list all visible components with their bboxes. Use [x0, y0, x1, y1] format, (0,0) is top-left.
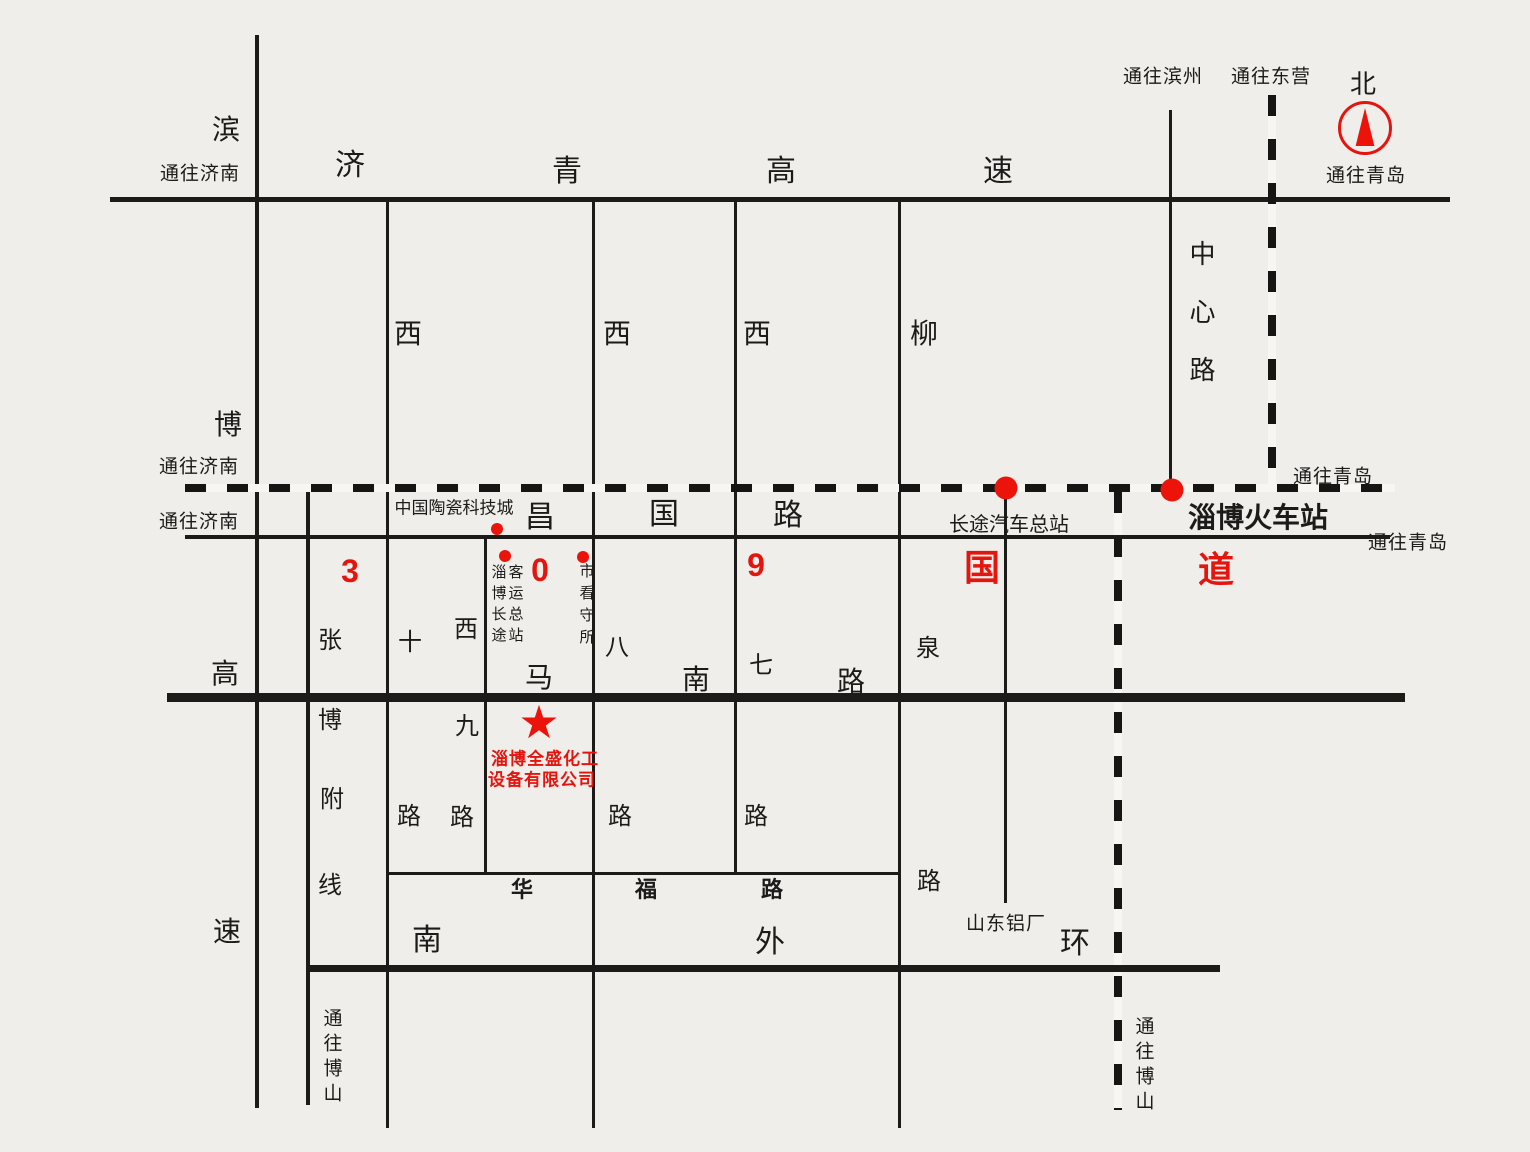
huafu-char-hua: 华 — [511, 879, 533, 901]
zhangbo-branch-line — [306, 488, 310, 1105]
binbo-char-bin: 滨 — [212, 116, 240, 144]
xi8-char-xi: 西 — [603, 320, 631, 348]
to-jinan-changguo-label: 通往济南 — [159, 513, 239, 532]
schematic-location-map: 通往济南 济 青 高 速 通往滨州 通往东营 北 通往青岛 西 西 西 柳 中心… — [0, 0, 1530, 1152]
north-label: 北 — [1350, 71, 1376, 97]
route309-char-dao: 道 — [1198, 552, 1234, 588]
to-dongying-label: 通往东营 — [1231, 68, 1311, 87]
xi10-char-xi: 西 — [394, 320, 422, 348]
to-qingdao-changguo-label: 通往青岛 — [1368, 534, 1448, 553]
xi8-char-lu: 路 — [608, 805, 632, 829]
to-jinan-top-label: 通往济南 — [160, 165, 240, 184]
bus-terminal-label-col2: 客运总站 — [508, 564, 523, 648]
coach-station-label: 长途汽车总站 — [949, 515, 1069, 535]
route309-digit-9: 9 — [747, 549, 765, 581]
xi9-char-lu: 路 — [450, 806, 474, 830]
south-outer-ring-line — [308, 965, 1220, 972]
to-boshan-left-label: 通往博山 — [322, 1008, 341, 1108]
zhongxin-road-line — [1169, 110, 1172, 490]
jiqing-char-ji: 济 — [335, 151, 365, 181]
to-qingdao-compass-label: 通往青岛 — [1326, 167, 1406, 186]
compass-needle-icon — [1352, 108, 1378, 146]
train-station-dot — [1161, 479, 1184, 502]
liuquan-char-lu: 路 — [917, 870, 941, 894]
route309-char-guo: 国 — [964, 550, 1000, 586]
manan-char-lu: 路 — [837, 668, 865, 696]
binbo-char-su: 速 — [213, 918, 241, 946]
changguo-road-line — [185, 535, 1390, 539]
coach-station-dot — [995, 477, 1018, 500]
company-name-line2: 设备有限公司 — [488, 766, 596, 791]
company-star-icon: ★ — [518, 695, 559, 749]
nanwaihuan-char-huan: 环 — [1060, 929, 1090, 959]
xi7-char-xi: 西 — [743, 320, 771, 348]
changguo-char-chang: 昌 — [525, 503, 555, 533]
jiqing-char-qing: 青 — [552, 157, 582, 187]
liuquan-road-line — [898, 200, 901, 1128]
xi8-road-line — [592, 200, 595, 1128]
manan-char-ma: 马 — [525, 664, 553, 692]
route309-digit-0: 0 — [531, 554, 549, 586]
zhangbo-char-bo: 博 — [318, 709, 342, 733]
bus-terminal-dot — [499, 550, 511, 562]
binbo-char-gao: 高 — [211, 660, 239, 688]
jiqing-char-su: 速 — [983, 157, 1013, 187]
changguo-char-guo: 国 — [649, 500, 679, 530]
xi10-char-lu: 路 — [397, 805, 421, 829]
huafu-char-fu: 福 — [635, 879, 657, 901]
compass-icon — [1338, 101, 1392, 155]
zhangbo-char-fu: 附 — [320, 788, 344, 812]
zhangbo-char-xian: 线 — [318, 874, 342, 898]
detention-house-label: 市看守所 — [579, 563, 594, 651]
detention-house-dot — [577, 551, 589, 563]
jiqing-expressway-line — [110, 197, 1450, 202]
jiqing-char-gao: 高 — [766, 157, 796, 187]
manan-road-line — [167, 693, 1405, 702]
aluminum-plant-label: 山东铝厂 — [966, 915, 1046, 934]
xi9-char-jiu: 九 — [455, 715, 479, 739]
to-binzhou-label: 通往滨州 — [1123, 68, 1203, 87]
xi7-char-qi: 七 — [749, 654, 773, 678]
train-station-label: 淄博火车站 — [1188, 504, 1328, 532]
railway-branch-dongying — [1268, 95, 1276, 487]
liuquan-char-liu: 柳 — [910, 320, 938, 348]
ceramic-city-dot — [491, 523, 503, 535]
liuquan-char-quan: 泉 — [916, 637, 940, 661]
xi8-char-ba: 八 — [605, 636, 629, 660]
huafu-road-line — [388, 872, 899, 875]
xi10-char-shi: 十 — [398, 631, 422, 655]
zhangbo-char-zhang: 张 — [318, 629, 342, 653]
zhongxin-road-label: 中心路 — [1188, 240, 1214, 414]
to-boshan-railway-label: 通往博山 — [1134, 1016, 1153, 1116]
nanwaihuan-char-wai: 外 — [755, 928, 785, 958]
ceramic-city-label: 中国陶瓷科技城 — [395, 500, 514, 517]
route309-digit-3: 3 — [341, 555, 359, 587]
xi9-char-xi: 西 — [454, 618, 478, 642]
xi7-char-lu: 路 — [744, 805, 768, 829]
binbo-char-bo: 博 — [214, 411, 242, 439]
to-qingdao-railway-label: 通往青岛 — [1293, 468, 1373, 487]
railway-line — [185, 484, 1395, 492]
changguo-char-lu: 路 — [773, 501, 803, 531]
nanwaihuan-char-nan: 南 — [412, 926, 442, 956]
binbo-expressway-line — [255, 35, 259, 1108]
huafu-char-lu: 路 — [761, 879, 783, 901]
manan-char-nan: 南 — [682, 666, 710, 694]
xi10-road-line — [386, 200, 389, 1128]
railway-branch-boshan — [1114, 492, 1122, 1110]
to-jinan-railway-label: 通往济南 — [159, 458, 239, 477]
bus-terminal-label-col1: 淄博长途 — [491, 564, 506, 648]
xi9-road-line — [484, 537, 487, 873]
